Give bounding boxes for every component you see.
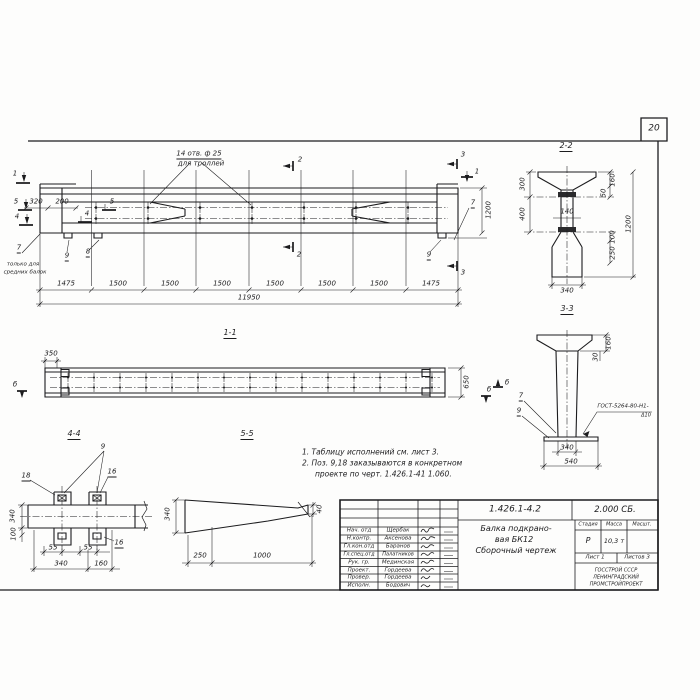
section-title: 3-3 <box>560 305 573 315</box>
dim-label: 50 <box>601 189 608 198</box>
position-mark: 9 <box>427 252 431 261</box>
staff-name: Палатников <box>382 552 414 557</box>
position-mark: 9 <box>65 253 69 262</box>
doc-number: 1.426.1-4.2 <box>489 506 541 515</box>
dim-label: 1500 <box>370 281 388 288</box>
section-title: 1-1 <box>223 329 236 339</box>
dim-label: 160 <box>610 173 617 186</box>
sheet-number: Лист 1 <box>585 555 604 561</box>
section-title: 5-5 <box>240 430 253 440</box>
section-5-5-outline <box>185 500 308 533</box>
dim-label: 100 <box>11 527 18 540</box>
col-header-stage: Стадия <box>578 523 597 528</box>
section-cut-label: 3 <box>461 270 465 277</box>
staff-name: Гордеева <box>384 568 411 574</box>
section-cut-label: 3 <box>461 152 465 159</box>
dim-label: 1475 <box>422 281 440 288</box>
position-mark: 16 <box>108 469 117 478</box>
staff-name: Баранов <box>386 544 410 550</box>
weld-note-line2: Δ10 <box>641 414 651 419</box>
dim-label: 540 <box>564 459 577 466</box>
drawing-title-line1: Балка подкрано- <box>480 525 551 533</box>
dim-label: 300 <box>520 177 527 190</box>
col-header-mass: Масса <box>606 523 622 528</box>
stage-value: Р <box>586 537 591 545</box>
dim-label: 340 <box>560 288 573 295</box>
staff-role: Н.контр. <box>347 536 372 542</box>
section-title: 2-2 <box>559 142 572 152</box>
dim-label: 40 <box>317 505 324 514</box>
position-mark: 8 <box>86 249 90 258</box>
staff-name: Гордеева <box>384 575 411 581</box>
position-mark: 9 <box>517 408 521 417</box>
position-mark: 7 <box>17 245 21 254</box>
drawing-linework <box>0 0 700 700</box>
doc-code: 2.000 СБ. <box>594 506 636 515</box>
dim-label: 11950 <box>238 295 260 302</box>
dim-label: 200 <box>55 199 68 206</box>
note-middle-beams-2: средних балок <box>4 270 47 276</box>
dim-label: 160 <box>94 561 107 568</box>
staff-name: Щербак <box>387 528 410 534</box>
staff-role: Провер. <box>348 575 371 581</box>
position-mark: 18 <box>22 473 31 482</box>
section-cut-label: 4 <box>85 211 89 218</box>
dim-label: 250 <box>610 246 617 259</box>
org-line1: ГОССТРОЙ СССР <box>595 569 638 574</box>
staff-role: Нач. отд <box>347 528 372 534</box>
dim-label: 340 <box>54 561 67 568</box>
section-cut-label: 2 <box>297 252 301 259</box>
signature-squiggles <box>421 528 435 587</box>
dim-label: 140 <box>560 209 573 216</box>
dim-label: 1500 <box>266 281 284 288</box>
hole-note-line2: для троллей <box>178 161 224 168</box>
dim-label: 55 <box>49 545 58 552</box>
section-cut-label: 2 <box>298 157 302 164</box>
section-cut-label: 5 <box>110 199 114 206</box>
dim-label: 160 <box>606 336 613 349</box>
dim-label: 650 <box>464 375 471 388</box>
staff-role: Исполн. <box>348 583 371 589</box>
position-mark: 16 <box>115 540 124 549</box>
position-mark: 7 <box>519 393 523 402</box>
hole-note-line1: 14 отв. ф 25 <box>176 151 221 160</box>
note-line3: проекте по черт. 1.426.1-41 1.060. <box>315 470 452 478</box>
view-mark: б <box>13 382 17 389</box>
weld-note-line1: ГОСТ-5264-80-Н1- <box>597 404 648 410</box>
dim-label: 340 <box>10 509 17 522</box>
section-1-1-outline <box>45 368 445 397</box>
staff-name: Аксенова <box>384 536 411 542</box>
section-cut-label: 1 <box>13 171 17 178</box>
staff-role: Рук. гр. <box>348 560 370 566</box>
view-mark: б <box>487 387 491 394</box>
note-middle-beams-1: только для <box>7 262 39 268</box>
break-lines <box>58 495 310 531</box>
section-cut-label: 4 <box>15 214 19 221</box>
org-line2: ЛЕНИНГРАДСКИЙ <box>593 576 639 581</box>
position-mark: 7 <box>471 200 475 209</box>
section-4-4-outline <box>28 492 148 545</box>
position-mark: 9 <box>101 444 105 451</box>
dim-label: 340 <box>560 445 573 452</box>
col-header-scale: Масшт. <box>632 523 651 528</box>
centerlines <box>20 166 616 550</box>
section-cut-label: 1 <box>475 169 479 176</box>
dim-label: 30 <box>593 353 600 362</box>
view-mark: б <box>505 380 509 387</box>
dim-label: 340 <box>165 507 172 520</box>
section-title: 4-4 <box>67 430 80 440</box>
dim-label: 1500 <box>213 281 231 288</box>
staff-name: Бодович <box>386 583 410 589</box>
note-line1: 1. Таблицу исполнений см. лист 3. <box>302 448 439 456</box>
dim-label: 320 <box>29 199 42 206</box>
staff-name: Мединская <box>382 560 414 566</box>
dim-label: 55 <box>84 545 93 552</box>
dim-label: 1500 <box>318 281 336 288</box>
dim-label: 250 <box>193 553 206 560</box>
page-number: 20 <box>648 125 659 134</box>
date-marks <box>444 532 453 587</box>
staff-role: Гл.кон.отд <box>344 544 375 550</box>
drawing-sheet: 20 14 отв. ф 25 для троллей 2 2 3 3 1 1 … <box>0 0 700 700</box>
mass-value: 10,3 т <box>604 538 624 545</box>
org-line3: ПРОМСТРОЙПРОЕКТ <box>590 583 643 588</box>
dim-label: 1475 <box>57 281 75 288</box>
drawing-title-line3: Сборочный чертеж <box>476 547 557 555</box>
drawing-title-line2: вая БК12 <box>495 536 533 544</box>
staff-role: Гл.спец.отд <box>343 552 374 557</box>
dim-label: 400 <box>520 207 527 220</box>
dim-label: 1000 <box>253 553 271 560</box>
dim-label: 1500 <box>161 281 179 288</box>
dim-label: 350 <box>44 351 57 358</box>
dim-label: 1500 <box>109 281 127 288</box>
dim-label: 1200 <box>626 215 633 233</box>
staff-role: Проект. <box>348 568 371 574</box>
arrowheads <box>20 162 590 437</box>
dim-label: 1200 <box>486 201 493 219</box>
section-cut-label: 5 <box>14 199 18 206</box>
dim-label: 100 <box>610 230 617 243</box>
sheet-count: Листов 3 <box>624 555 650 561</box>
note-line2: 2. Поз. 9,18 заказываются в конкретном <box>302 459 462 467</box>
